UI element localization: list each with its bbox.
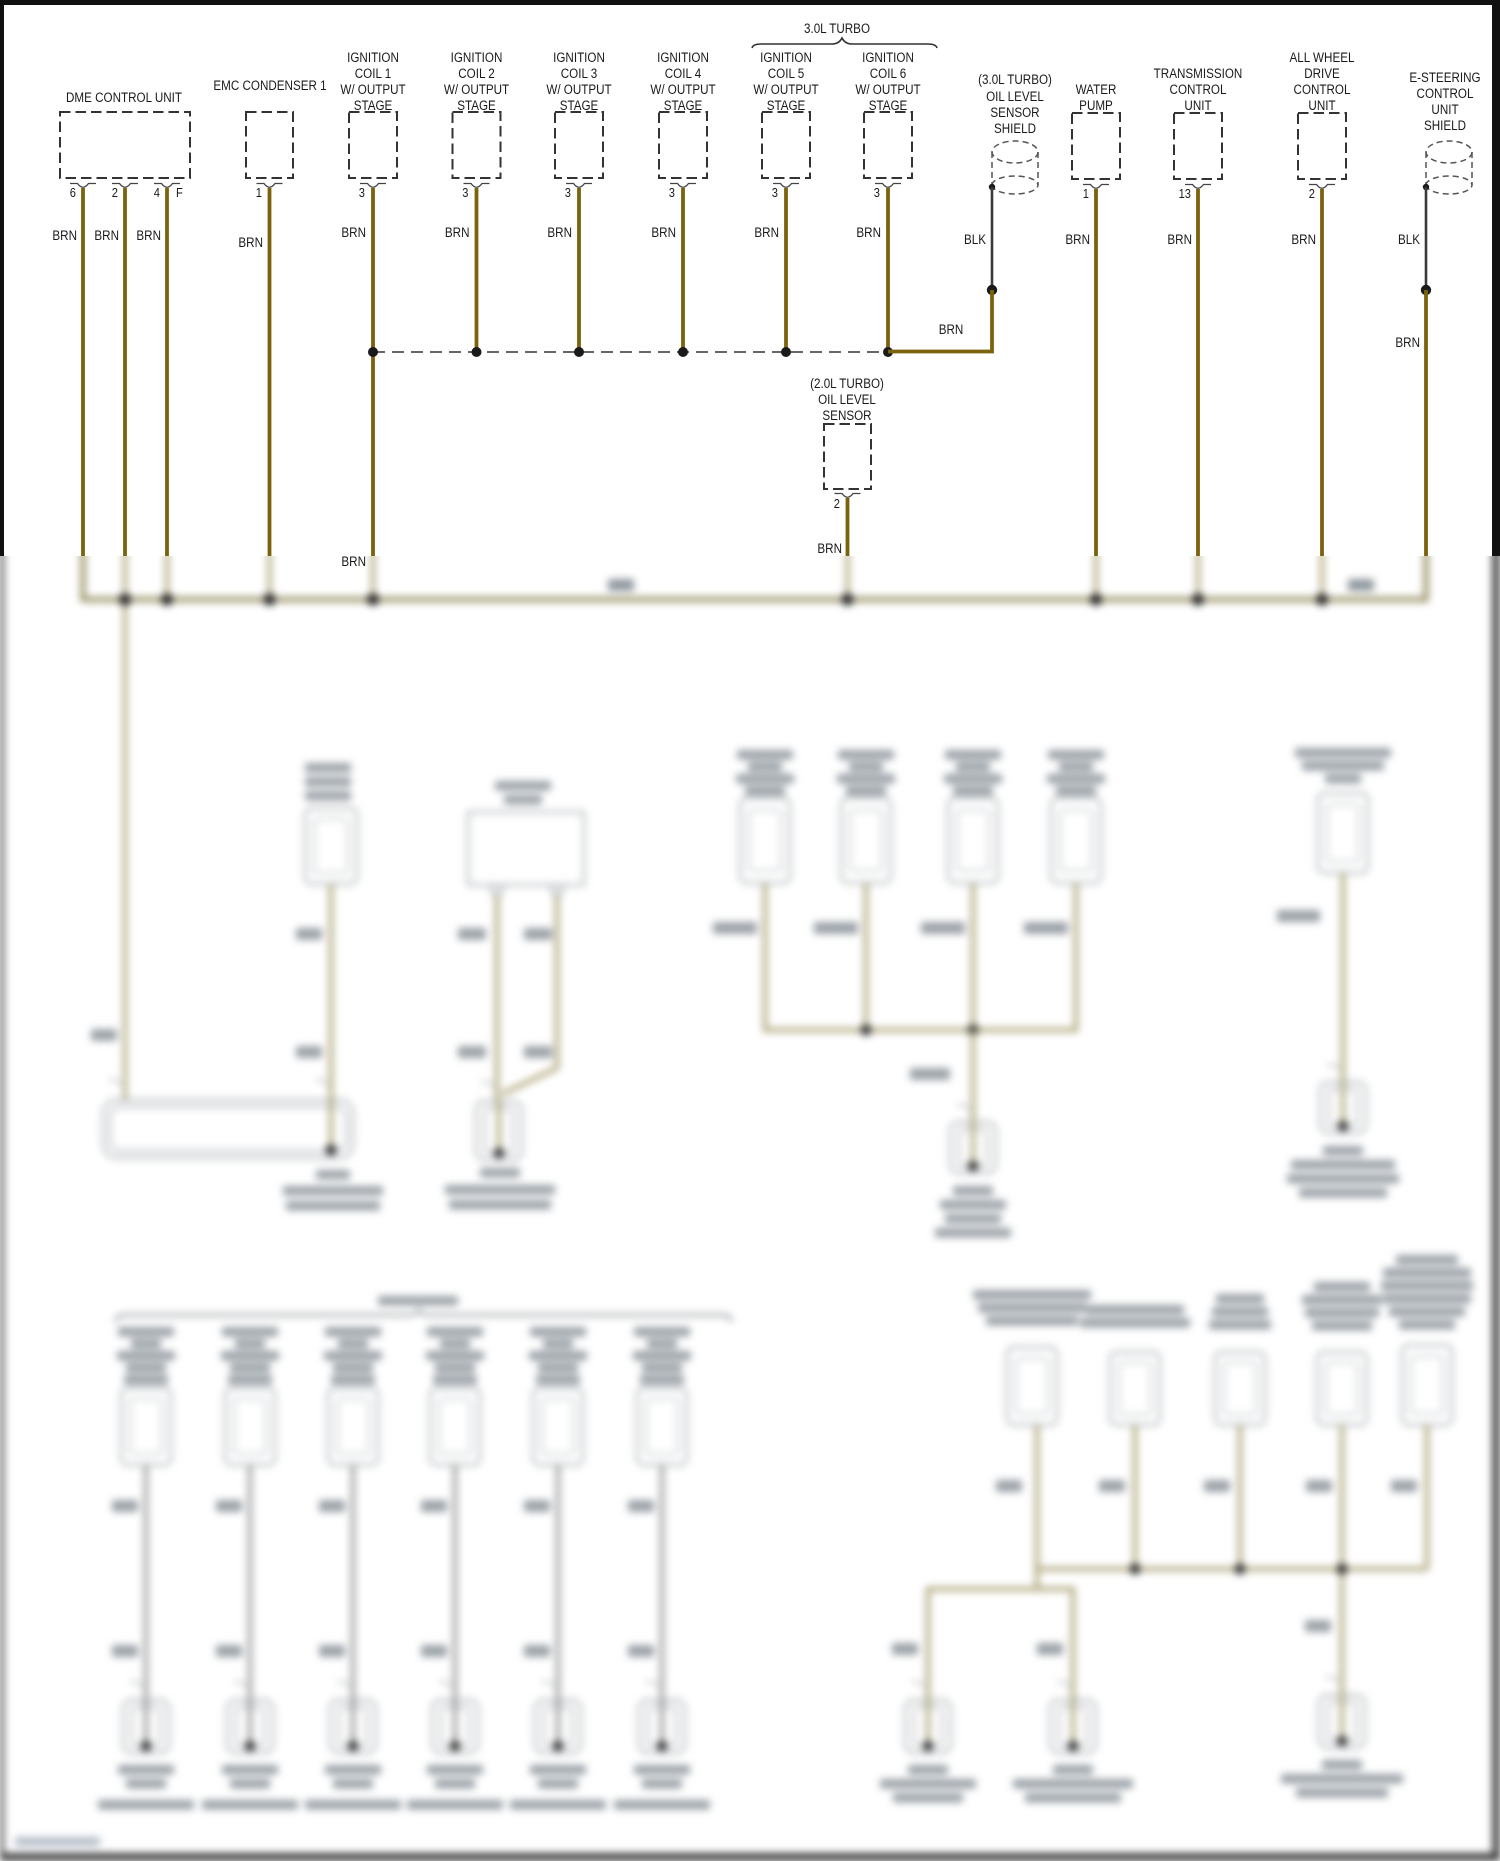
svg-text:COIL 3: COIL 3 (561, 66, 597, 81)
svg-text:IGNITION: IGNITION (451, 50, 503, 65)
svg-text:3.0L TURBO: 3.0L TURBO (804, 21, 870, 36)
svg-text:EMC CONDENSER 1: EMC CONDENSER 1 (213, 78, 326, 93)
svg-text:PUMP: PUMP (1079, 98, 1113, 113)
svg-text:W/ OUTPUT: W/ OUTPUT (444, 82, 510, 97)
svg-text:SENSOR: SENSOR (822, 408, 871, 423)
svg-text:E-STEERING: E-STEERING (1409, 70, 1480, 85)
svg-text:UNIT: UNIT (1184, 98, 1211, 113)
svg-text:SHIELD: SHIELD (1424, 118, 1466, 133)
svg-text:W/ OUTPUT: W/ OUTPUT (753, 82, 819, 97)
svg-text:BRN: BRN (1167, 232, 1192, 247)
svg-text:BRN: BRN (1395, 335, 1420, 350)
svg-text:BRN: BRN (547, 225, 572, 240)
svg-text:IGNITION: IGNITION (347, 50, 399, 65)
svg-text:1: 1 (1083, 186, 1089, 201)
svg-text:OIL LEVEL: OIL LEVEL (986, 89, 1044, 104)
svg-text:CONTROL: CONTROL (1417, 86, 1474, 101)
svg-text:BRN: BRN (94, 228, 119, 243)
svg-text:3: 3 (462, 185, 468, 200)
svg-text:BRN: BRN (445, 225, 470, 240)
svg-text:BRN: BRN (651, 225, 676, 240)
svg-text:BRN: BRN (341, 225, 366, 240)
svg-text:DRIVE: DRIVE (1304, 66, 1340, 81)
svg-text:2: 2 (1309, 186, 1315, 201)
svg-text:F: F (176, 185, 183, 200)
svg-text:(3.0L TURBO): (3.0L TURBO) (978, 72, 1052, 87)
svg-text:BRN: BRN (238, 235, 263, 250)
svg-text:3: 3 (874, 185, 880, 200)
svg-text:IGNITION: IGNITION (657, 50, 709, 65)
svg-text:13: 13 (1179, 186, 1192, 201)
svg-text:BLK: BLK (1398, 232, 1421, 247)
svg-text:3: 3 (772, 185, 778, 200)
svg-text:BRN: BRN (136, 228, 161, 243)
svg-text:UNIT: UNIT (1308, 98, 1335, 113)
svg-text:BRN: BRN (1291, 232, 1316, 247)
svg-text:STAGE: STAGE (560, 98, 599, 113)
svg-text:W/ OUTPUT: W/ OUTPUT (855, 82, 921, 97)
svg-text:CONTROL: CONTROL (1294, 82, 1351, 97)
svg-text:TRANSMISSION: TRANSMISSION (1154, 66, 1243, 81)
svg-text:4: 4 (154, 185, 160, 200)
svg-text:IGNITION: IGNITION (862, 50, 914, 65)
svg-text:IGNITION: IGNITION (553, 50, 605, 65)
svg-text:W/ OUTPUT: W/ OUTPUT (546, 82, 612, 97)
svg-text:BRN: BRN (341, 554, 366, 569)
svg-text:W/ OUTPUT: W/ OUTPUT (650, 82, 716, 97)
svg-text:BRN: BRN (817, 541, 842, 556)
svg-text:BLK: BLK (964, 232, 987, 247)
svg-text:OIL LEVEL: OIL LEVEL (818, 392, 876, 407)
svg-text:CONTROL: CONTROL (1170, 82, 1227, 97)
svg-text:COIL 4: COIL 4 (665, 66, 701, 81)
svg-text:COIL 1: COIL 1 (355, 66, 391, 81)
svg-text:BRN: BRN (52, 228, 77, 243)
svg-text:IGNITION: IGNITION (760, 50, 812, 65)
svg-text:STAGE: STAGE (767, 98, 806, 113)
svg-text:6: 6 (70, 185, 76, 200)
svg-text:SENSOR: SENSOR (990, 105, 1039, 120)
svg-text:STAGE: STAGE (354, 98, 393, 113)
svg-text:2: 2 (834, 496, 840, 511)
svg-text:BRN: BRN (1065, 232, 1090, 247)
svg-text:BRN: BRN (939, 322, 964, 337)
svg-text:W/ OUTPUT: W/ OUTPUT (340, 82, 406, 97)
svg-text:STAGE: STAGE (457, 98, 496, 113)
svg-text:3: 3 (669, 185, 675, 200)
svg-text:UNIT: UNIT (1431, 102, 1458, 117)
svg-text:2: 2 (112, 185, 118, 200)
svg-text:(2.0L TURBO): (2.0L TURBO) (810, 376, 884, 391)
svg-text:COIL 5: COIL 5 (768, 66, 804, 81)
svg-text:3: 3 (565, 185, 571, 200)
svg-text:STAGE: STAGE (869, 98, 908, 113)
svg-text:COIL 2: COIL 2 (458, 66, 494, 81)
svg-text:COIL 6: COIL 6 (870, 66, 906, 81)
svg-text:STAGE: STAGE (664, 98, 703, 113)
svg-text:DME CONTROL UNIT: DME CONTROL UNIT (66, 90, 182, 105)
svg-text:WATER: WATER (1076, 82, 1117, 97)
svg-text:3: 3 (359, 185, 365, 200)
svg-text:SHIELD: SHIELD (994, 121, 1036, 136)
svg-text:1: 1 (256, 185, 262, 200)
svg-text:BRN: BRN (754, 225, 779, 240)
svg-text:ALL WHEEL: ALL WHEEL (1290, 50, 1355, 65)
svg-text:BRN: BRN (856, 225, 881, 240)
